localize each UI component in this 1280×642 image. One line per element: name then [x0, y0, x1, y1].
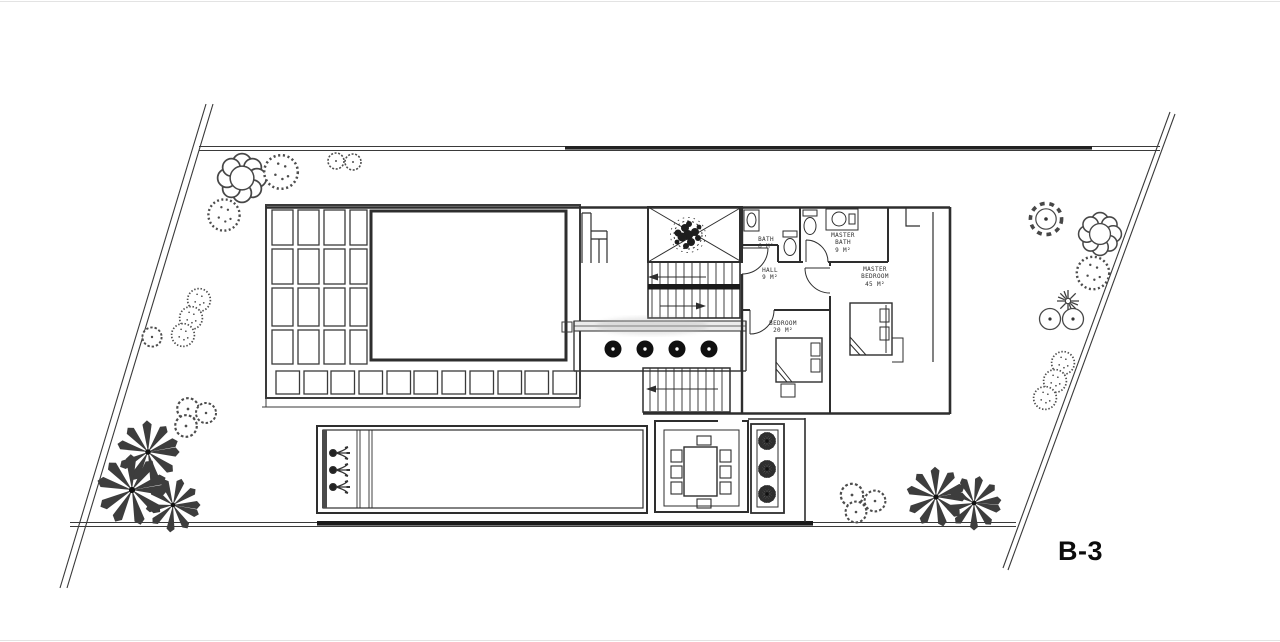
tree-gear	[1030, 203, 1061, 234]
dining-table	[684, 447, 717, 496]
room-label-master-bedroom: MASTER BEDROOM 45 M²	[853, 266, 897, 288]
stair-direction-arrow	[646, 386, 656, 393]
tree-cloud	[1079, 213, 1122, 256]
tree-cloud	[218, 154, 267, 203]
tree-stipple	[1034, 387, 1057, 410]
boundary-wall-thick-top	[565, 146, 1092, 150]
bush	[328, 153, 344, 169]
toilet-tank	[803, 210, 817, 216]
bush	[175, 415, 197, 437]
room-name: HALL	[762, 267, 778, 274]
tree-stipple	[1077, 257, 1109, 289]
room-area: 9 M²	[825, 247, 861, 254]
planter-flower	[759, 486, 776, 503]
room-area: 9 M²	[753, 274, 787, 281]
courtyard-planter	[648, 207, 742, 262]
room-name: BEDROOM	[769, 320, 797, 327]
kitchen-island	[562, 317, 746, 371]
room-label-bath: BATH 6 M²	[749, 236, 783, 251]
bush	[846, 502, 867, 523]
room-name: MASTER BEDROOM	[861, 266, 889, 280]
pool-plant	[330, 447, 351, 459]
toilet-tank	[783, 231, 797, 237]
boundary-wall-thick-bottom	[317, 521, 813, 526]
living-room	[371, 211, 607, 360]
room-area: 45 M²	[853, 281, 897, 288]
staircase-upper	[648, 262, 740, 318]
bush	[196, 403, 216, 423]
bush	[345, 154, 361, 170]
bedroom-bed	[776, 338, 822, 397]
tree-circle	[1040, 309, 1061, 330]
room-area: 20 M²	[757, 327, 809, 334]
watermark-smudge	[596, 317, 708, 335]
sheet-label: B-3	[1058, 536, 1128, 567]
entry-wall-detail	[582, 213, 607, 263]
bush	[865, 491, 886, 512]
toilet-bowl	[804, 218, 816, 235]
stair-section-cut	[648, 284, 740, 290]
tree-circle	[1063, 309, 1084, 330]
room-label-hall: HALL 9 M²	[753, 267, 787, 282]
pergola-cells	[272, 210, 577, 394]
dining-room	[655, 418, 748, 513]
palm-tree	[116, 420, 179, 484]
bedroom-furniture	[776, 303, 903, 397]
bar-stools	[605, 341, 718, 358]
room-name: MASTER BATH	[831, 232, 855, 246]
master-bed	[850, 303, 903, 362]
bush	[142, 327, 161, 346]
planter-flower	[759, 433, 776, 450]
staircase-lower	[643, 368, 730, 412]
pool-steps	[357, 430, 372, 508]
tree-stipple	[172, 324, 195, 347]
room-name: BATH	[758, 236, 774, 243]
room-area: 6 M²	[749, 243, 783, 250]
floor-plan: BATH 6 M² MASTER BATH 9 M² HALL 9 M² MAS…	[0, 0, 1280, 642]
pool-plant	[330, 481, 351, 493]
planter-strip	[748, 418, 805, 522]
tree-stipple	[264, 155, 298, 189]
room-label-bedroom: BEDROOM 20 M²	[757, 320, 809, 335]
pergola-grid	[262, 205, 580, 407]
stair-direction-arrow	[696, 303, 706, 310]
room-label-master-bath: MASTER BATH 9 M²	[825, 232, 861, 254]
toilet-bowl	[784, 239, 796, 256]
planter-flower	[759, 461, 776, 478]
stair-direction-arrow	[648, 274, 658, 281]
sink-basin	[832, 212, 846, 226]
pool-plant	[330, 464, 351, 476]
tree-stipple	[208, 199, 239, 230]
side-table	[781, 384, 795, 397]
swimming-pool	[317, 426, 647, 513]
